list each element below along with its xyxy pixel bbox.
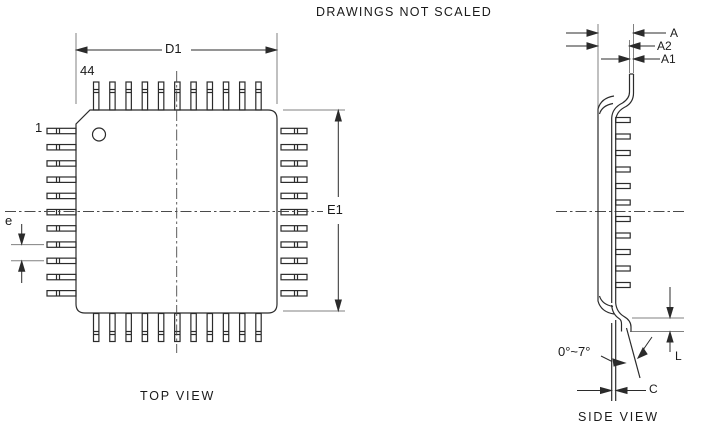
pin xyxy=(47,209,76,214)
dim-a2 xyxy=(566,43,655,49)
pin xyxy=(191,82,196,110)
qfp-side-view xyxy=(598,74,640,401)
pin xyxy=(616,167,631,172)
pin xyxy=(158,82,163,110)
pin xyxy=(256,314,261,342)
pin xyxy=(126,82,131,110)
pin xyxy=(47,177,76,182)
angled-tip-line xyxy=(627,328,641,378)
pin xyxy=(158,314,163,342)
dim-a xyxy=(566,30,666,36)
label-foot-angle: 0°~7° xyxy=(558,345,590,359)
caption-side-view: SIDE VIEW xyxy=(578,410,659,424)
pin xyxy=(94,82,99,110)
pin xyxy=(175,82,180,110)
pin xyxy=(110,82,115,110)
package-outline-drawing xyxy=(0,0,727,438)
pin xyxy=(616,184,631,189)
angle-annotation xyxy=(601,337,652,366)
label-c: C xyxy=(649,382,658,396)
pin xyxy=(126,314,131,342)
pin xyxy=(256,82,261,110)
pin xyxy=(616,151,631,156)
dim-l xyxy=(667,287,673,352)
pin xyxy=(47,226,76,231)
caption-top-view: TOP VIEW xyxy=(140,389,215,403)
side-lead-top xyxy=(616,74,634,120)
pin xyxy=(207,82,212,110)
pin xyxy=(47,291,76,296)
left-pins xyxy=(47,128,76,296)
label-pin1: 1 xyxy=(35,121,42,135)
pin xyxy=(47,193,76,198)
label-e: e xyxy=(5,214,12,228)
pin xyxy=(616,250,631,255)
pin xyxy=(616,200,631,205)
pin xyxy=(110,314,115,342)
bottom-pins xyxy=(94,314,262,342)
dim-e xyxy=(19,224,25,283)
pin xyxy=(616,217,631,222)
pin1-indicator xyxy=(93,128,106,141)
label-d1: D1 xyxy=(165,42,182,56)
side-lead-stubs xyxy=(616,118,631,288)
pin xyxy=(616,266,631,271)
pin xyxy=(240,314,245,342)
pin xyxy=(223,314,228,342)
pin xyxy=(142,314,147,342)
label-e1: E1 xyxy=(327,203,343,217)
pin xyxy=(223,82,228,110)
label-pin44: 44 xyxy=(80,64,94,78)
label-a1: A1 xyxy=(661,52,676,66)
pin xyxy=(191,314,196,342)
centerlines xyxy=(5,71,687,353)
top-pins xyxy=(94,82,262,110)
pin xyxy=(94,314,99,342)
pin xyxy=(47,258,76,263)
pin xyxy=(47,128,76,133)
extension-lines xyxy=(11,24,684,332)
label-l: L xyxy=(675,349,682,363)
pin xyxy=(47,274,76,279)
label-a2: A2 xyxy=(657,39,672,53)
pin xyxy=(616,134,631,139)
label-a: A xyxy=(670,26,678,40)
drawing-title: DRAWINGS NOT SCALED xyxy=(316,5,492,19)
pin xyxy=(616,283,631,288)
right-pins xyxy=(281,128,307,296)
pin xyxy=(175,314,180,342)
pin xyxy=(47,242,76,247)
pin xyxy=(240,82,245,110)
pin xyxy=(616,118,631,123)
drawing-canvas: DRAWINGS NOT SCALED D1 E1 e 44 1 A A2 A1… xyxy=(0,0,727,438)
pin xyxy=(207,314,212,342)
pin xyxy=(142,82,147,110)
pin xyxy=(616,233,631,238)
dim-a1 xyxy=(601,56,660,62)
pin xyxy=(47,161,76,166)
pin xyxy=(47,145,76,150)
